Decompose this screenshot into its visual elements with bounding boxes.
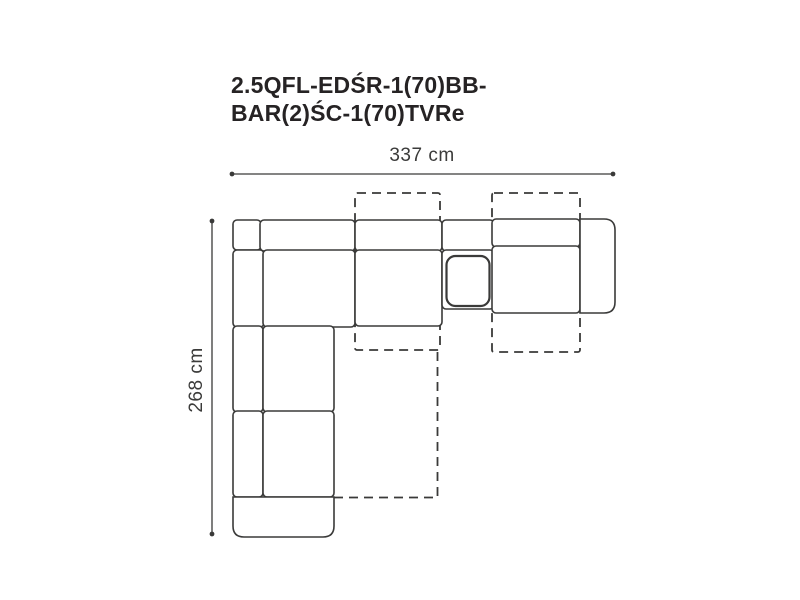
chaise-backrest-upper <box>233 326 263 412</box>
corner-backrest-top <box>260 220 355 251</box>
chaise-seat-upper <box>263 326 334 412</box>
width-dimension-right-dot <box>611 172 616 177</box>
middle-backrest <box>355 220 442 251</box>
corner-seat <box>263 250 355 327</box>
sofa-modules-group <box>233 219 615 537</box>
height-dimension-bottom-dot <box>210 532 215 537</box>
corner-backrest-left <box>233 250 264 327</box>
bar-backrest <box>442 220 494 251</box>
sofa-spec-diagram-page: 2.5QFL-EDŚR-1(70)BB- BAR(2)ŚC-1(70)TVRe … <box>0 0 800 600</box>
chaise-seat-lower <box>263 411 334 497</box>
sleeping-function-outline-dashed <box>334 350 438 498</box>
right-backrest <box>492 219 580 247</box>
right-armrest <box>580 219 615 313</box>
right-seat <box>492 246 580 313</box>
sofa-top-view-diagram <box>0 0 800 600</box>
front-armrest <box>233 497 334 537</box>
corner-back-cushion <box>233 220 261 250</box>
bar-tabletop <box>447 256 490 306</box>
height-dimension-top-dot <box>210 219 215 224</box>
chaise-backrest-lower <box>233 411 263 497</box>
width-dimension-left-dot <box>230 172 235 177</box>
middle-seat <box>355 250 442 326</box>
